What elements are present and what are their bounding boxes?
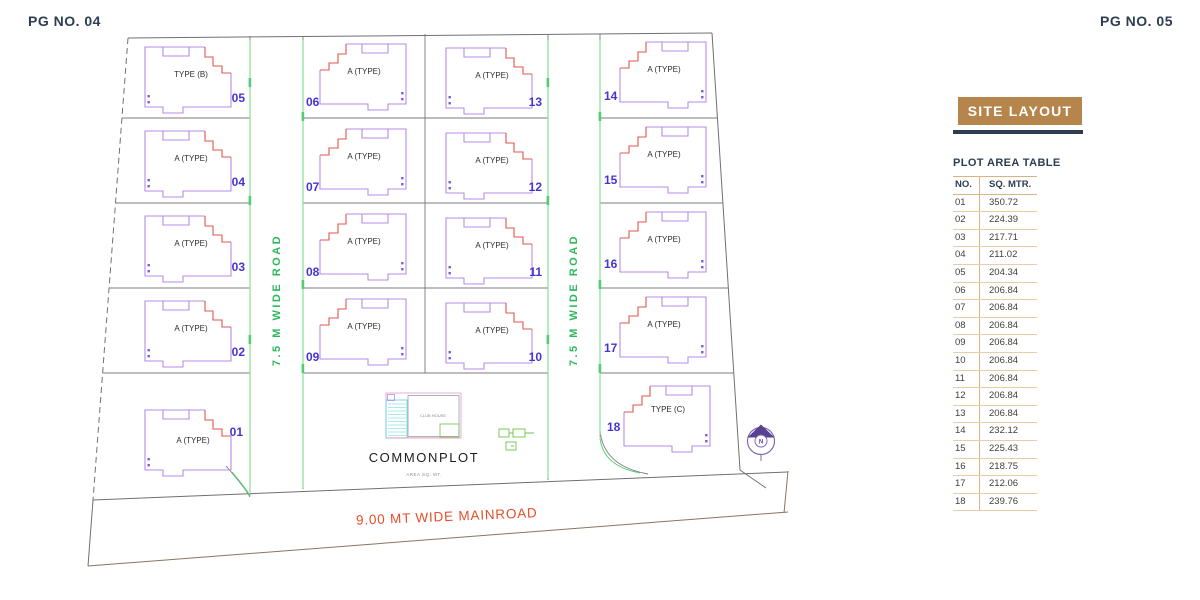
house-footprint — [320, 44, 406, 110]
house-footprint — [446, 303, 532, 369]
plot-sqm-cell: 206.84 — [980, 353, 1018, 370]
house-footprint — [446, 218, 532, 284]
table-row: 01350.72 — [953, 195, 1037, 213]
plot-type-label: A (TYPE) — [647, 320, 681, 329]
plot-number: 03 — [232, 260, 246, 274]
plot-16: A (TYPE)16 — [604, 212, 706, 278]
plot-no-cell: 16 — [953, 459, 980, 476]
table-row: 12206.84 — [953, 388, 1037, 406]
plot-number: 12 — [529, 180, 543, 194]
plot-number: 04 — [232, 175, 246, 189]
plot-05: TYPE (B)05 — [145, 47, 245, 113]
plot-number: 02 — [232, 345, 246, 359]
right-road-label: 7.5 M WIDE ROAD — [568, 234, 580, 366]
plot-no-cell: 05 — [953, 265, 980, 282]
plot-sqm-cell: 211.02 — [980, 247, 1017, 264]
plot-sqm-cell: 239.76 — [980, 494, 1018, 511]
plot-number: 13 — [529, 95, 543, 109]
plot-15: A (TYPE)15 — [604, 127, 706, 193]
table-row: 05204.34 — [953, 265, 1037, 283]
plot-type-label: A (TYPE) — [475, 71, 509, 80]
plot-01: A (TYPE)01 — [145, 410, 243, 476]
table-row: 02224.39 — [953, 212, 1037, 230]
table-header-row: NO. SQ. MTR. — [953, 176, 1037, 195]
north-arrow-icon: N — [748, 425, 775, 462]
clubhouse-label: CLUB HOUSE — [420, 413, 446, 418]
plot-area-table: NO. SQ. MTR. 01350.7202224.3903217.71042… — [953, 176, 1037, 511]
plot-type-label: TYPE (B) — [174, 70, 208, 79]
plot-04: A (TYPE)04 — [145, 131, 245, 197]
table-row: 09206.84 — [953, 335, 1037, 353]
plots-layer: A (TYPE)01A (TYPE)02A (TYPE)03A (TYPE)04… — [145, 42, 710, 476]
plot-number: 16 — [604, 257, 618, 271]
plot-type-label: A (TYPE) — [647, 235, 681, 244]
plot-no-cell: 12 — [953, 388, 980, 405]
plot-type-label: A (TYPE) — [475, 241, 509, 250]
plot-type-label: A (TYPE) — [647, 150, 681, 159]
plot-type-label: A (TYPE) — [475, 156, 509, 165]
commonplot-caption: AREA SQ. MT. — [406, 472, 442, 477]
plot-type-label: A (TYPE) — [647, 65, 681, 74]
plot-no-cell: 04 — [953, 247, 980, 264]
plot-no-cell: 07 — [953, 300, 980, 317]
house-footprint — [624, 386, 710, 452]
house-footprint — [145, 47, 231, 113]
plot-02: A (TYPE)02 — [145, 301, 245, 367]
plot-type-label: TYPE (C) — [651, 405, 686, 414]
plot-sqm-cell: 206.84 — [980, 406, 1018, 423]
plot-sqm-cell: 212.06 — [980, 476, 1018, 493]
plot-no-cell: 09 — [953, 335, 980, 352]
furniture-blocks — [499, 429, 534, 450]
house-footprint — [320, 129, 406, 195]
plot-no-cell: 14 — [953, 423, 980, 440]
plot-sqm-cell: 206.84 — [980, 335, 1018, 352]
plot-12: A (TYPE)12 — [446, 133, 542, 199]
plot-type-label: A (TYPE) — [347, 322, 381, 331]
plot-sqm-cell: 206.84 — [980, 283, 1018, 300]
house-footprint — [620, 127, 706, 193]
plot-no-cell: 01 — [953, 195, 980, 212]
plot-no-cell: 06 — [953, 283, 980, 300]
site-layout-title: SITE LAYOUT — [958, 97, 1082, 125]
plot-sqm-cell: 206.84 — [980, 371, 1018, 388]
plot-sqm-cell: 204.34 — [980, 265, 1018, 282]
main-road-label: 9.00 MT WIDE MAINROAD — [356, 505, 538, 528]
plot-grid — [103, 34, 734, 497]
plot-no-cell: 11 — [953, 371, 980, 388]
plot-17: A (TYPE)17 — [604, 297, 706, 363]
col-header-sqm: SQ. MTR. — [980, 177, 1031, 194]
plot-no-cell: 15 — [953, 441, 980, 458]
plot-sqm-cell: 350.72 — [980, 195, 1018, 212]
plot-number: 01 — [230, 425, 244, 439]
plot-number: 08 — [306, 265, 320, 279]
plot-no-cell: 03 — [953, 230, 980, 247]
house-footprint — [145, 131, 231, 197]
site-layout-sheet: PG NO. 04 PG NO. 05 — [0, 0, 1200, 600]
plot-no-cell: 18 — [953, 494, 980, 511]
table-row: 10206.84 — [953, 353, 1037, 371]
plot-11: A (TYPE)11 — [446, 218, 542, 284]
house-footprint — [320, 214, 406, 280]
plot-number: 11 — [529, 265, 542, 279]
plot-08: A (TYPE)08 — [306, 214, 406, 280]
table-row: 18239.76 — [953, 494, 1037, 512]
commonplot-label: COMMONPLOT — [369, 450, 480, 465]
plot-type-label: A (TYPE) — [347, 152, 381, 161]
plot-type-label: A (TYPE) — [347, 67, 381, 76]
plot-no-cell: 10 — [953, 353, 980, 370]
table-row: 11206.84 — [953, 371, 1037, 389]
house-footprint — [446, 133, 532, 199]
table-row: 17212.06 — [953, 476, 1037, 494]
plot-number: 06 — [306, 95, 320, 109]
plot-07: A (TYPE)07 — [306, 129, 406, 195]
table-row: 16218.75 — [953, 459, 1037, 477]
plot-sqm-cell: 232.12 — [980, 423, 1018, 440]
plot-06: A (TYPE)06 — [306, 44, 406, 110]
plot-type-label: A (TYPE) — [176, 436, 210, 445]
plot-type-label: A (TYPE) — [174, 324, 208, 333]
house-footprint — [145, 216, 231, 282]
table-row: 04211.02 — [953, 247, 1037, 265]
plot-type-label: A (TYPE) — [347, 237, 381, 246]
site-boundary — [88, 33, 788, 566]
plot-sqm-cell: 224.39 — [980, 212, 1018, 229]
plot-13: A (TYPE)13 — [446, 48, 542, 114]
compass-letter: N — [759, 440, 763, 446]
table-row: 07206.84 — [953, 300, 1037, 318]
col-header-no: NO. — [953, 177, 980, 194]
plot-type-label: A (TYPE) — [475, 326, 509, 335]
clubhouse-drawing: CLUB HOUSE — [386, 393, 461, 438]
table-row: 15225.43 — [953, 441, 1037, 459]
plot-sqm-cell: 206.84 — [980, 388, 1018, 405]
house-footprint — [620, 297, 706, 363]
house-footprint — [320, 299, 406, 365]
plot-sqm-cell: 206.84 — [980, 318, 1018, 335]
table-row: 13206.84 — [953, 406, 1037, 424]
plot-sqm-cell: 225.43 — [980, 441, 1018, 458]
plot-no-cell: 17 — [953, 476, 980, 493]
plot-sqm-cell: 206.84 — [980, 300, 1018, 317]
house-footprint — [446, 48, 532, 114]
plot-no-cell: 02 — [953, 212, 980, 229]
house-footprint — [145, 301, 231, 367]
plot-18: TYPE (C)18 — [607, 386, 710, 452]
plot-number: 10 — [529, 350, 543, 364]
plot-sqm-cell: 218.75 — [980, 459, 1018, 476]
plot-number: 05 — [232, 91, 246, 105]
plot-number: 15 — [604, 173, 618, 187]
plot-03: A (TYPE)03 — [145, 216, 245, 282]
plot-number: 09 — [306, 350, 320, 364]
plot-number: 17 — [604, 341, 618, 355]
plot-type-label: A (TYPE) — [174, 154, 208, 163]
table-row: 06206.84 — [953, 283, 1037, 301]
plot-type-label: A (TYPE) — [174, 239, 208, 248]
table-row: 08206.84 — [953, 318, 1037, 336]
plot-no-cell: 08 — [953, 318, 980, 335]
left-road-label: 7.5 M WIDE ROAD — [271, 234, 283, 366]
plot-09: A (TYPE)09 — [306, 299, 406, 365]
house-footprint — [620, 212, 706, 278]
plot-area-table-title: PLOT AREA TABLE — [953, 157, 1061, 169]
plot-10: A (TYPE)10 — [446, 303, 542, 369]
plot-number: 14 — [604, 89, 618, 103]
plot-number: 18 — [607, 420, 621, 434]
title-underline — [953, 130, 1083, 134]
plot-14: A (TYPE)14 — [604, 42, 706, 108]
plot-no-cell: 13 — [953, 406, 980, 423]
table-row: 14232.12 — [953, 423, 1037, 441]
plot-sqm-cell: 217.71 — [980, 230, 1018, 247]
table-row: 03217.71 — [953, 230, 1037, 248]
plot-number: 07 — [306, 180, 320, 194]
house-footprint — [620, 42, 706, 108]
